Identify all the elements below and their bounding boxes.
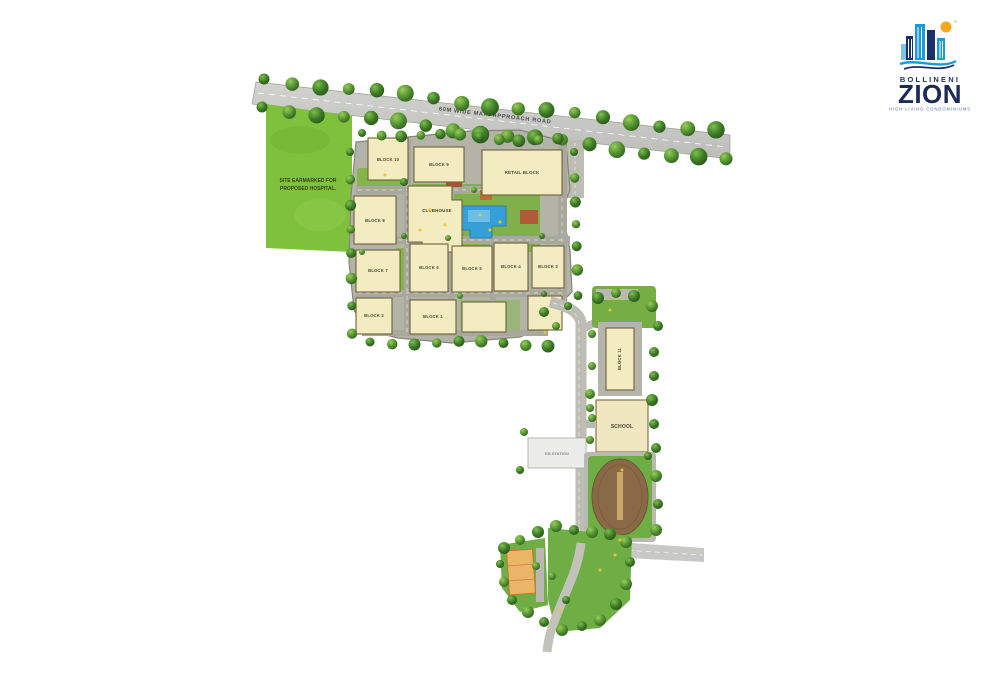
tree-icon: [588, 414, 596, 422]
tree-icon: [475, 335, 487, 347]
tree-icon: [572, 264, 583, 275]
tree-icon: [604, 528, 616, 540]
tree-icon: [638, 148, 650, 160]
tree-icon: [644, 452, 652, 460]
tree-icon: [364, 111, 378, 125]
wave-accent: [904, 65, 954, 69]
tree-icon: [650, 524, 662, 536]
tree-icon: [499, 338, 509, 348]
tree-icon: [588, 362, 596, 370]
tree-icon: [427, 92, 440, 105]
shrub-icon: [621, 469, 624, 472]
tree-icon: [690, 148, 707, 165]
tree-icon: [564, 302, 572, 310]
tree-icon: [377, 131, 387, 141]
tree-icon: [620, 536, 632, 548]
residential-cluster: BLOCK 10 BLOCK 9 BLOCK 8 BLOCK 7 BLOCK 6…: [349, 130, 572, 343]
tree-icon: [520, 340, 531, 351]
shrub-icon: [444, 224, 447, 227]
clubhouse-label: CLUBHOUSE: [422, 208, 452, 213]
tree-icon: [370, 83, 384, 97]
tree-icon: [397, 85, 414, 102]
tree-icon: [646, 394, 658, 406]
tree-icon: [539, 233, 545, 239]
tree-icon: [653, 321, 663, 331]
tree-icon: [586, 436, 594, 444]
tree-icon: [395, 131, 407, 143]
shrub-icon: [544, 331, 547, 334]
tree-icon: [454, 336, 465, 347]
tree-icon: [608, 141, 625, 158]
tree-icon: [574, 291, 583, 300]
sun-icon: [941, 22, 952, 33]
tree-icon: [552, 133, 564, 145]
tree-icon: [572, 241, 582, 251]
tree-icon: [359, 249, 365, 255]
tree-icon: [588, 330, 596, 338]
block-label: BLOCK 5: [462, 266, 482, 271]
tree-icon: [498, 542, 510, 554]
tree-icon: [387, 339, 397, 349]
site-plan-map: 60M WIDE MAIN APPROACH ROAD SITE EARMARK…: [0, 0, 990, 685]
shrub-icon: [609, 309, 612, 312]
tree-icon: [516, 466, 524, 474]
tree-icon: [346, 148, 354, 156]
tree-icon: [570, 173, 579, 182]
tree-icon: [347, 225, 355, 233]
tree-icon: [719, 152, 732, 165]
hospital-note-line2: PROPOSED HOSPITAL.: [280, 186, 337, 192]
tree-icon: [471, 187, 477, 193]
shrub-icon: [614, 554, 617, 557]
block-label: BLOCK 3: [538, 264, 558, 269]
tree-icon: [475, 132, 484, 141]
tree-icon: [282, 105, 296, 119]
tree-icon: [285, 77, 299, 91]
tree-icon: [625, 557, 635, 567]
shrub-icon: [619, 539, 622, 542]
tree-icon: [628, 290, 640, 302]
shrub-icon: [489, 229, 492, 232]
tree-icon: [522, 606, 534, 618]
tree-icon: [345, 200, 356, 211]
tree-icon: [548, 572, 556, 580]
tree-icon: [308, 107, 324, 123]
tree-icon: [539, 617, 549, 627]
tree-icon: [541, 291, 547, 297]
tree-icon: [532, 562, 540, 570]
tree-icon: [401, 233, 407, 239]
tree-icon: [653, 121, 665, 133]
tree-icon: [445, 235, 451, 241]
tree-icon: [494, 134, 505, 145]
tree-icon: [347, 328, 357, 338]
tree-icon: [620, 578, 632, 590]
tree-icon: [259, 74, 270, 85]
tree-icon: [496, 560, 504, 568]
shrub-icon: [384, 174, 387, 177]
shrub-icon: [479, 214, 482, 217]
block-label: BLOCK 11: [617, 347, 622, 370]
tree-icon: [347, 301, 356, 310]
tree-icon: [515, 535, 525, 545]
tree-icon: [577, 621, 587, 631]
tree-icon: [611, 288, 621, 298]
shrub-icon: [429, 209, 432, 212]
tree-icon: [572, 220, 580, 228]
site-plan-page: 60M WIDE MAIN APPROACH ROAD SITE EARMARK…: [0, 0, 990, 685]
tree-icon: [390, 112, 407, 129]
tree-icon: [534, 135, 544, 145]
tree-icon: [419, 119, 432, 132]
block-label: BLOCK 1: [423, 314, 443, 319]
wing-building: [462, 302, 506, 332]
tree-icon: [649, 419, 659, 429]
shrub-icon: [517, 559, 520, 562]
paved-court: [520, 210, 538, 224]
tree-icon: [664, 148, 679, 163]
tree-icon: [586, 404, 594, 412]
sports-court: [506, 549, 535, 595]
tree-icon: [610, 598, 622, 610]
tree-icon: [586, 526, 598, 538]
tree-icon: [570, 196, 581, 207]
tree-icon: [569, 107, 580, 118]
logo-tagline: HIGH LIVING CONDOMINIUMS: [889, 107, 971, 112]
retail-label: RETAIL BLOCK: [505, 170, 540, 175]
tree-icon: [542, 340, 555, 353]
tree-icon: [400, 178, 408, 186]
tree-icon: [520, 428, 528, 436]
tree-icon: [338, 111, 350, 123]
tree-icon: [646, 300, 658, 312]
tree-icon: [457, 293, 463, 299]
tree-icon: [582, 137, 596, 151]
tree-icon: [257, 102, 268, 113]
block-label: BLOCK 4: [501, 264, 521, 269]
shrub-icon: [419, 229, 422, 232]
shrub-icon: [599, 569, 602, 572]
tree-icon: [532, 526, 544, 538]
tree-icon: [650, 470, 662, 482]
school-label: SCHOOL: [611, 424, 634, 430]
tree-icon: [649, 371, 659, 381]
tree-icon: [569, 525, 579, 535]
logo-name: ZION: [898, 79, 962, 109]
logo-skyline-icon: ®: [900, 19, 957, 69]
wave-accent: [900, 61, 956, 64]
tree-icon: [507, 595, 517, 605]
tree-icon: [594, 614, 606, 626]
tree-icon: [552, 322, 560, 330]
bollineni-zion-logo: ® BOLLINENI ZION HIGH LIVING CONDOMINIUM…: [878, 12, 982, 114]
block-label: BLOCK 2: [364, 313, 384, 318]
tree-icon: [651, 443, 661, 453]
tree-icon: [346, 273, 357, 284]
tree-icon: [585, 389, 595, 399]
block-label: BLOCK 8: [365, 218, 385, 223]
tree-icon: [454, 96, 469, 111]
cricket-pitch: [617, 472, 623, 520]
tree-icon: [417, 131, 426, 140]
tree-icon: [454, 128, 466, 140]
tree-icon: [366, 338, 375, 347]
tree-icon: [653, 499, 663, 509]
tree-icon: [512, 102, 525, 115]
tree-icon: [481, 98, 499, 116]
tree-icon: [623, 114, 640, 131]
tree-icon: [343, 83, 355, 95]
tree-icon: [596, 110, 610, 124]
tree-icon: [550, 520, 562, 532]
tree-icon: [680, 121, 695, 136]
shrub-icon: [559, 609, 562, 612]
tree-icon: [499, 577, 509, 587]
tree-icon: [432, 338, 441, 347]
tree-icon: [346, 248, 356, 258]
shrub-icon: [499, 221, 502, 224]
tree-icon: [539, 102, 555, 118]
tree-icon: [346, 175, 355, 184]
hospital-note-line1: SITE EARMARKED FOR: [280, 178, 337, 184]
tree-icon: [592, 292, 604, 304]
tree-icon: [435, 129, 445, 139]
tree-icon: [707, 121, 724, 138]
block-label: BLOCK 9: [429, 162, 449, 167]
tree-icon: [649, 347, 659, 357]
block-label: BLOCK 6: [419, 265, 439, 270]
block-label: BLOCK 7: [368, 268, 388, 273]
tree-icon: [570, 148, 578, 156]
eb-station-label: EB STATION: [545, 451, 569, 456]
tree-icon: [358, 129, 366, 137]
tree-icon: [512, 134, 525, 147]
tree-icon: [562, 596, 570, 604]
block-label: BLOCK 10: [377, 157, 400, 162]
tree-icon: [539, 307, 549, 317]
hospital-site: SITE EARMARKED FOR PROPOSED HOSPITAL.: [266, 104, 352, 252]
registered-mark: ®: [954, 19, 957, 24]
tree-icon: [409, 338, 421, 350]
shrub-icon: [529, 589, 532, 592]
tree-icon: [312, 79, 328, 95]
path: [536, 548, 544, 602]
tree-icon: [556, 624, 568, 636]
